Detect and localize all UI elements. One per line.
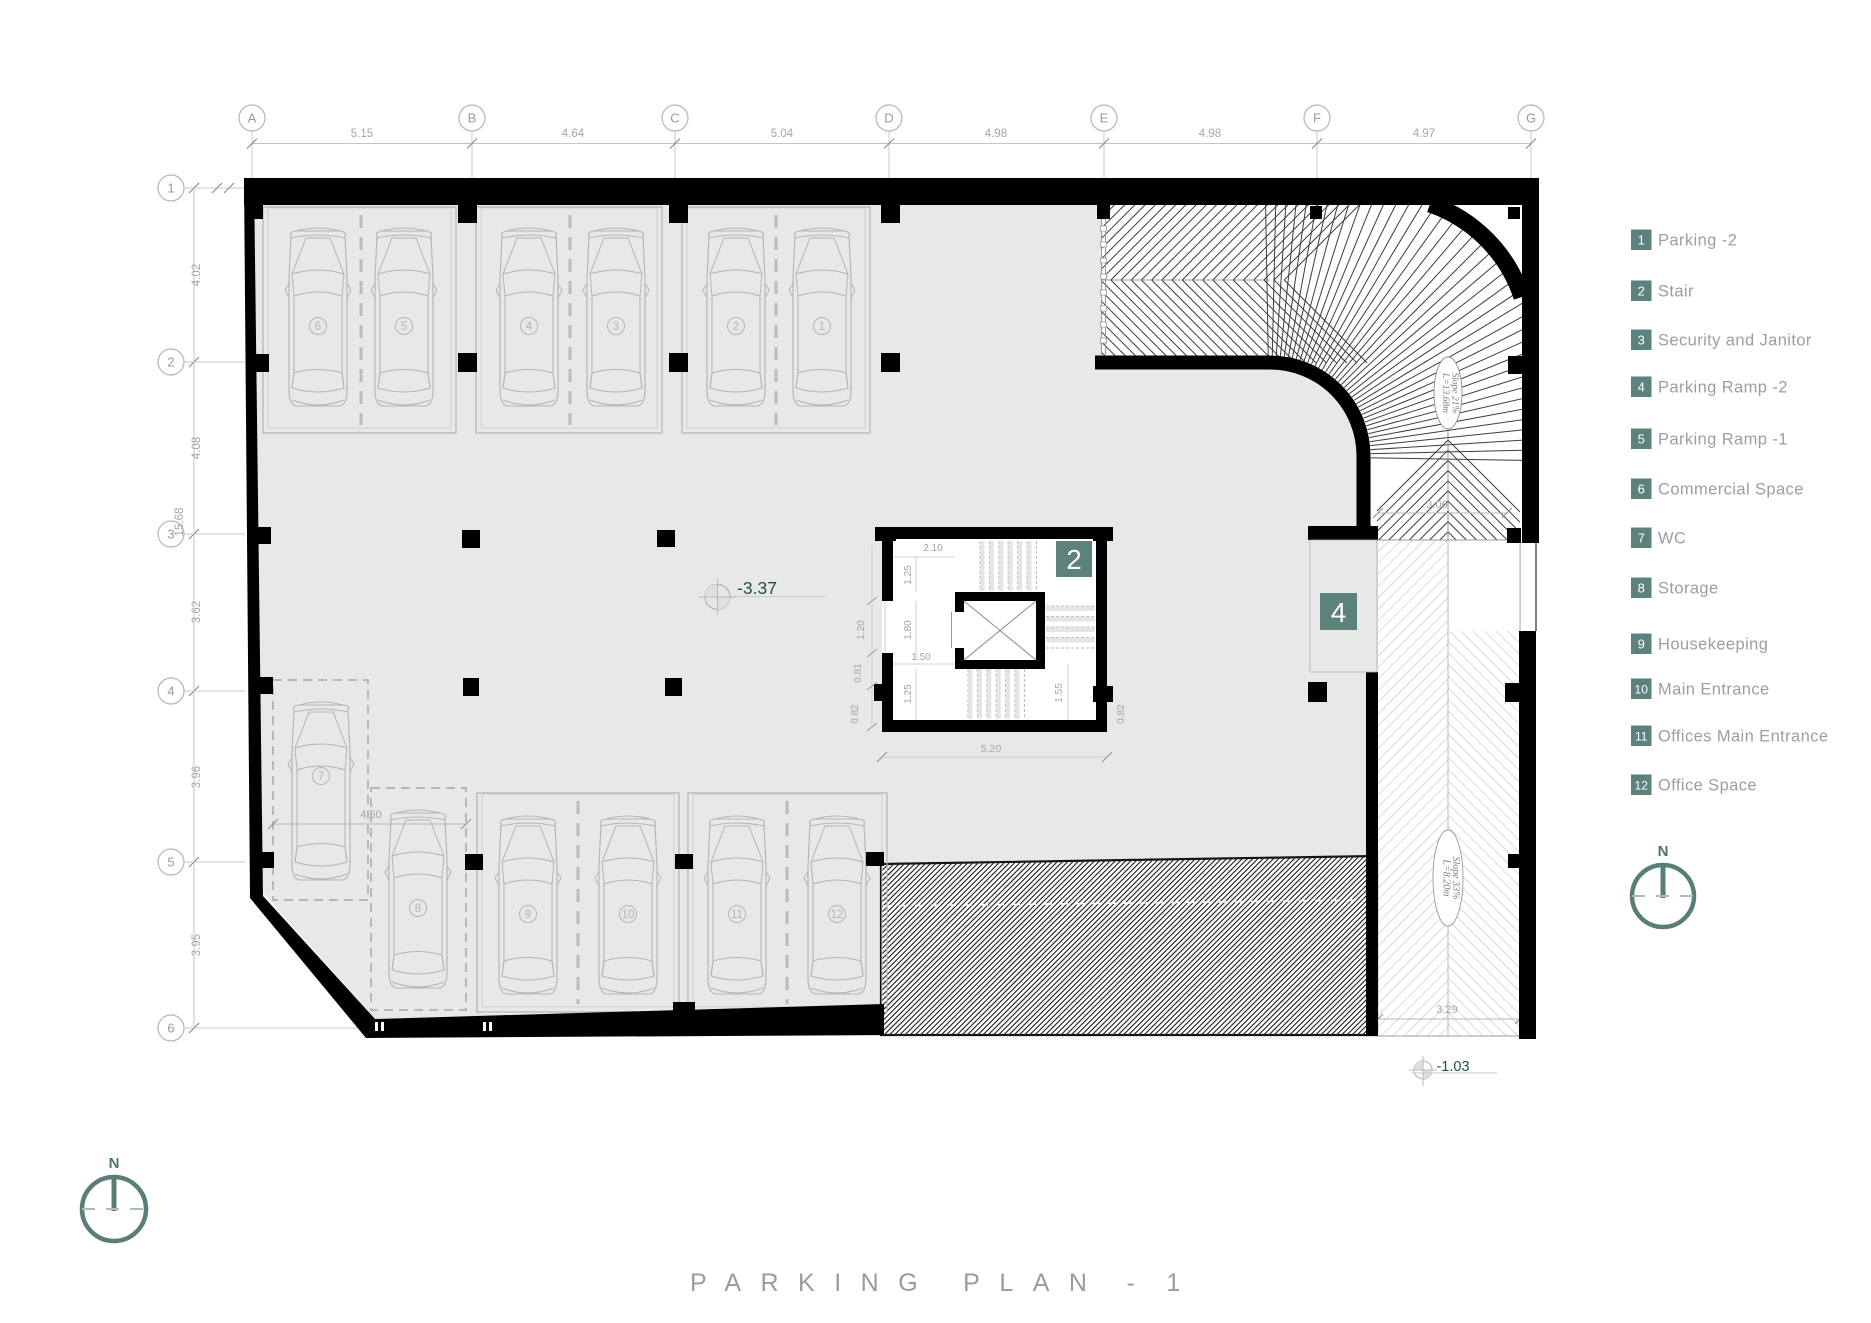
svg-text:2: 2 (1638, 284, 1645, 299)
svg-text:A: A (248, 111, 257, 126)
svg-text:0.81: 0.81 (853, 663, 864, 683)
svg-text:G: G (1526, 111, 1536, 126)
svg-text:5.04: 5.04 (771, 128, 794, 140)
svg-text:4.50: 4.50 (360, 809, 381, 821)
svg-text:4.64: 4.64 (562, 128, 585, 140)
svg-text:Housekeeping: Housekeeping (1658, 636, 1768, 654)
svg-text:8: 8 (1638, 581, 1645, 596)
svg-text:Storage: Storage (1658, 580, 1719, 598)
svg-text:5: 5 (401, 321, 407, 333)
svg-text:1.80: 1.80 (903, 620, 914, 640)
svg-text:2.10: 2.10 (923, 543, 943, 554)
svg-text:12: 12 (1635, 779, 1649, 793)
svg-text:Main Entrance: Main Entrance (1658, 681, 1770, 699)
svg-text:3.06: 3.06 (1426, 499, 1447, 511)
svg-text:0.82: 0.82 (1116, 704, 1127, 724)
svg-text:0.82: 0.82 (850, 704, 861, 724)
svg-text:N: N (109, 1155, 120, 1172)
svg-text:WC: WC (1658, 530, 1686, 548)
svg-text:1: 1 (167, 181, 174, 196)
svg-text:Parking Ramp -2: Parking Ramp -2 (1658, 379, 1788, 397)
svg-text:-3.37: -3.37 (737, 578, 777, 598)
svg-text:1.55: 1.55 (1054, 683, 1065, 703)
svg-text:10: 10 (1635, 683, 1649, 697)
svg-text:Stair: Stair (1658, 283, 1694, 301)
svg-text:3: 3 (1638, 333, 1645, 348)
svg-text:4.98: 4.98 (1199, 128, 1221, 140)
svg-text:5: 5 (1638, 432, 1645, 447)
svg-text:8: 8 (415, 903, 421, 915)
svg-text:9: 9 (1638, 637, 1645, 652)
svg-text:12: 12 (831, 909, 844, 921)
svg-text:3.96: 3.96 (191, 766, 203, 788)
svg-text:4: 4 (1638, 380, 1645, 395)
svg-text:4: 4 (526, 321, 533, 333)
svg-text:4.98: 4.98 (985, 128, 1007, 140)
svg-text:7: 7 (318, 771, 324, 783)
svg-text:D: D (884, 111, 893, 126)
svg-text:-1.03: -1.03 (1436, 1059, 1469, 1075)
svg-text:1.20: 1.20 (856, 620, 867, 640)
svg-text:3: 3 (613, 321, 619, 333)
svg-text:11: 11 (1635, 730, 1648, 744)
svg-text:6: 6 (1638, 482, 1645, 497)
svg-text:1.25: 1.25 (903, 684, 914, 704)
svg-text:7: 7 (1638, 531, 1645, 546)
svg-text:11: 11 (731, 909, 743, 921)
svg-text:2: 2 (167, 355, 174, 370)
svg-text:1.25: 1.25 (903, 565, 914, 585)
svg-text:Offices Main Entrance: Offices Main Entrance (1658, 728, 1828, 746)
svg-text:4: 4 (167, 684, 174, 699)
svg-text:L=13.68m: L=13.68m (1440, 372, 1450, 413)
svg-text:5: 5 (167, 855, 174, 870)
svg-text:2: 2 (1066, 544, 1082, 575)
svg-text:Security and Janitor: Security and Janitor (1658, 332, 1812, 350)
svg-text:4.97: 4.97 (1413, 128, 1435, 140)
svg-text:C: C (670, 111, 679, 126)
svg-text:9: 9 (525, 909, 531, 921)
svg-text:B: B (468, 111, 477, 126)
svg-text:6: 6 (167, 1021, 174, 1036)
svg-text:4.02: 4.02 (191, 264, 203, 286)
svg-text:Parking -2: Parking -2 (1658, 232, 1737, 250)
svg-text:3.95: 3.95 (191, 934, 203, 956)
svg-text:1: 1 (1638, 233, 1645, 248)
svg-text:N: N (1658, 843, 1669, 860)
svg-text:2: 2 (733, 321, 739, 333)
svg-text:Slope 21%: Slope 21% (1450, 373, 1460, 414)
svg-text:Commercial Space: Commercial Space (1658, 481, 1804, 499)
svg-text:1: 1 (819, 321, 825, 333)
svg-text:6: 6 (315, 321, 321, 333)
svg-text:4: 4 (1331, 597, 1347, 628)
svg-text:L=8.20m: L=8.20m (1441, 858, 1452, 896)
svg-text:15.68: 15.68 (174, 508, 186, 537)
svg-text:1.50: 1.50 (911, 652, 931, 663)
svg-text:4.08: 4.08 (191, 437, 203, 459)
svg-text:Office Space: Office Space (1658, 777, 1757, 795)
svg-text:F: F (1313, 111, 1321, 126)
svg-text:E: E (1100, 111, 1109, 126)
svg-text:Parking Ramp -1: Parking Ramp -1 (1658, 431, 1788, 449)
svg-text:3.62: 3.62 (191, 601, 203, 623)
svg-text:5.15: 5.15 (351, 128, 373, 140)
svg-text:3.29: 3.29 (1436, 1004, 1457, 1016)
svg-text:10: 10 (622, 909, 635, 921)
svg-text:5.20: 5.20 (981, 743, 1002, 755)
